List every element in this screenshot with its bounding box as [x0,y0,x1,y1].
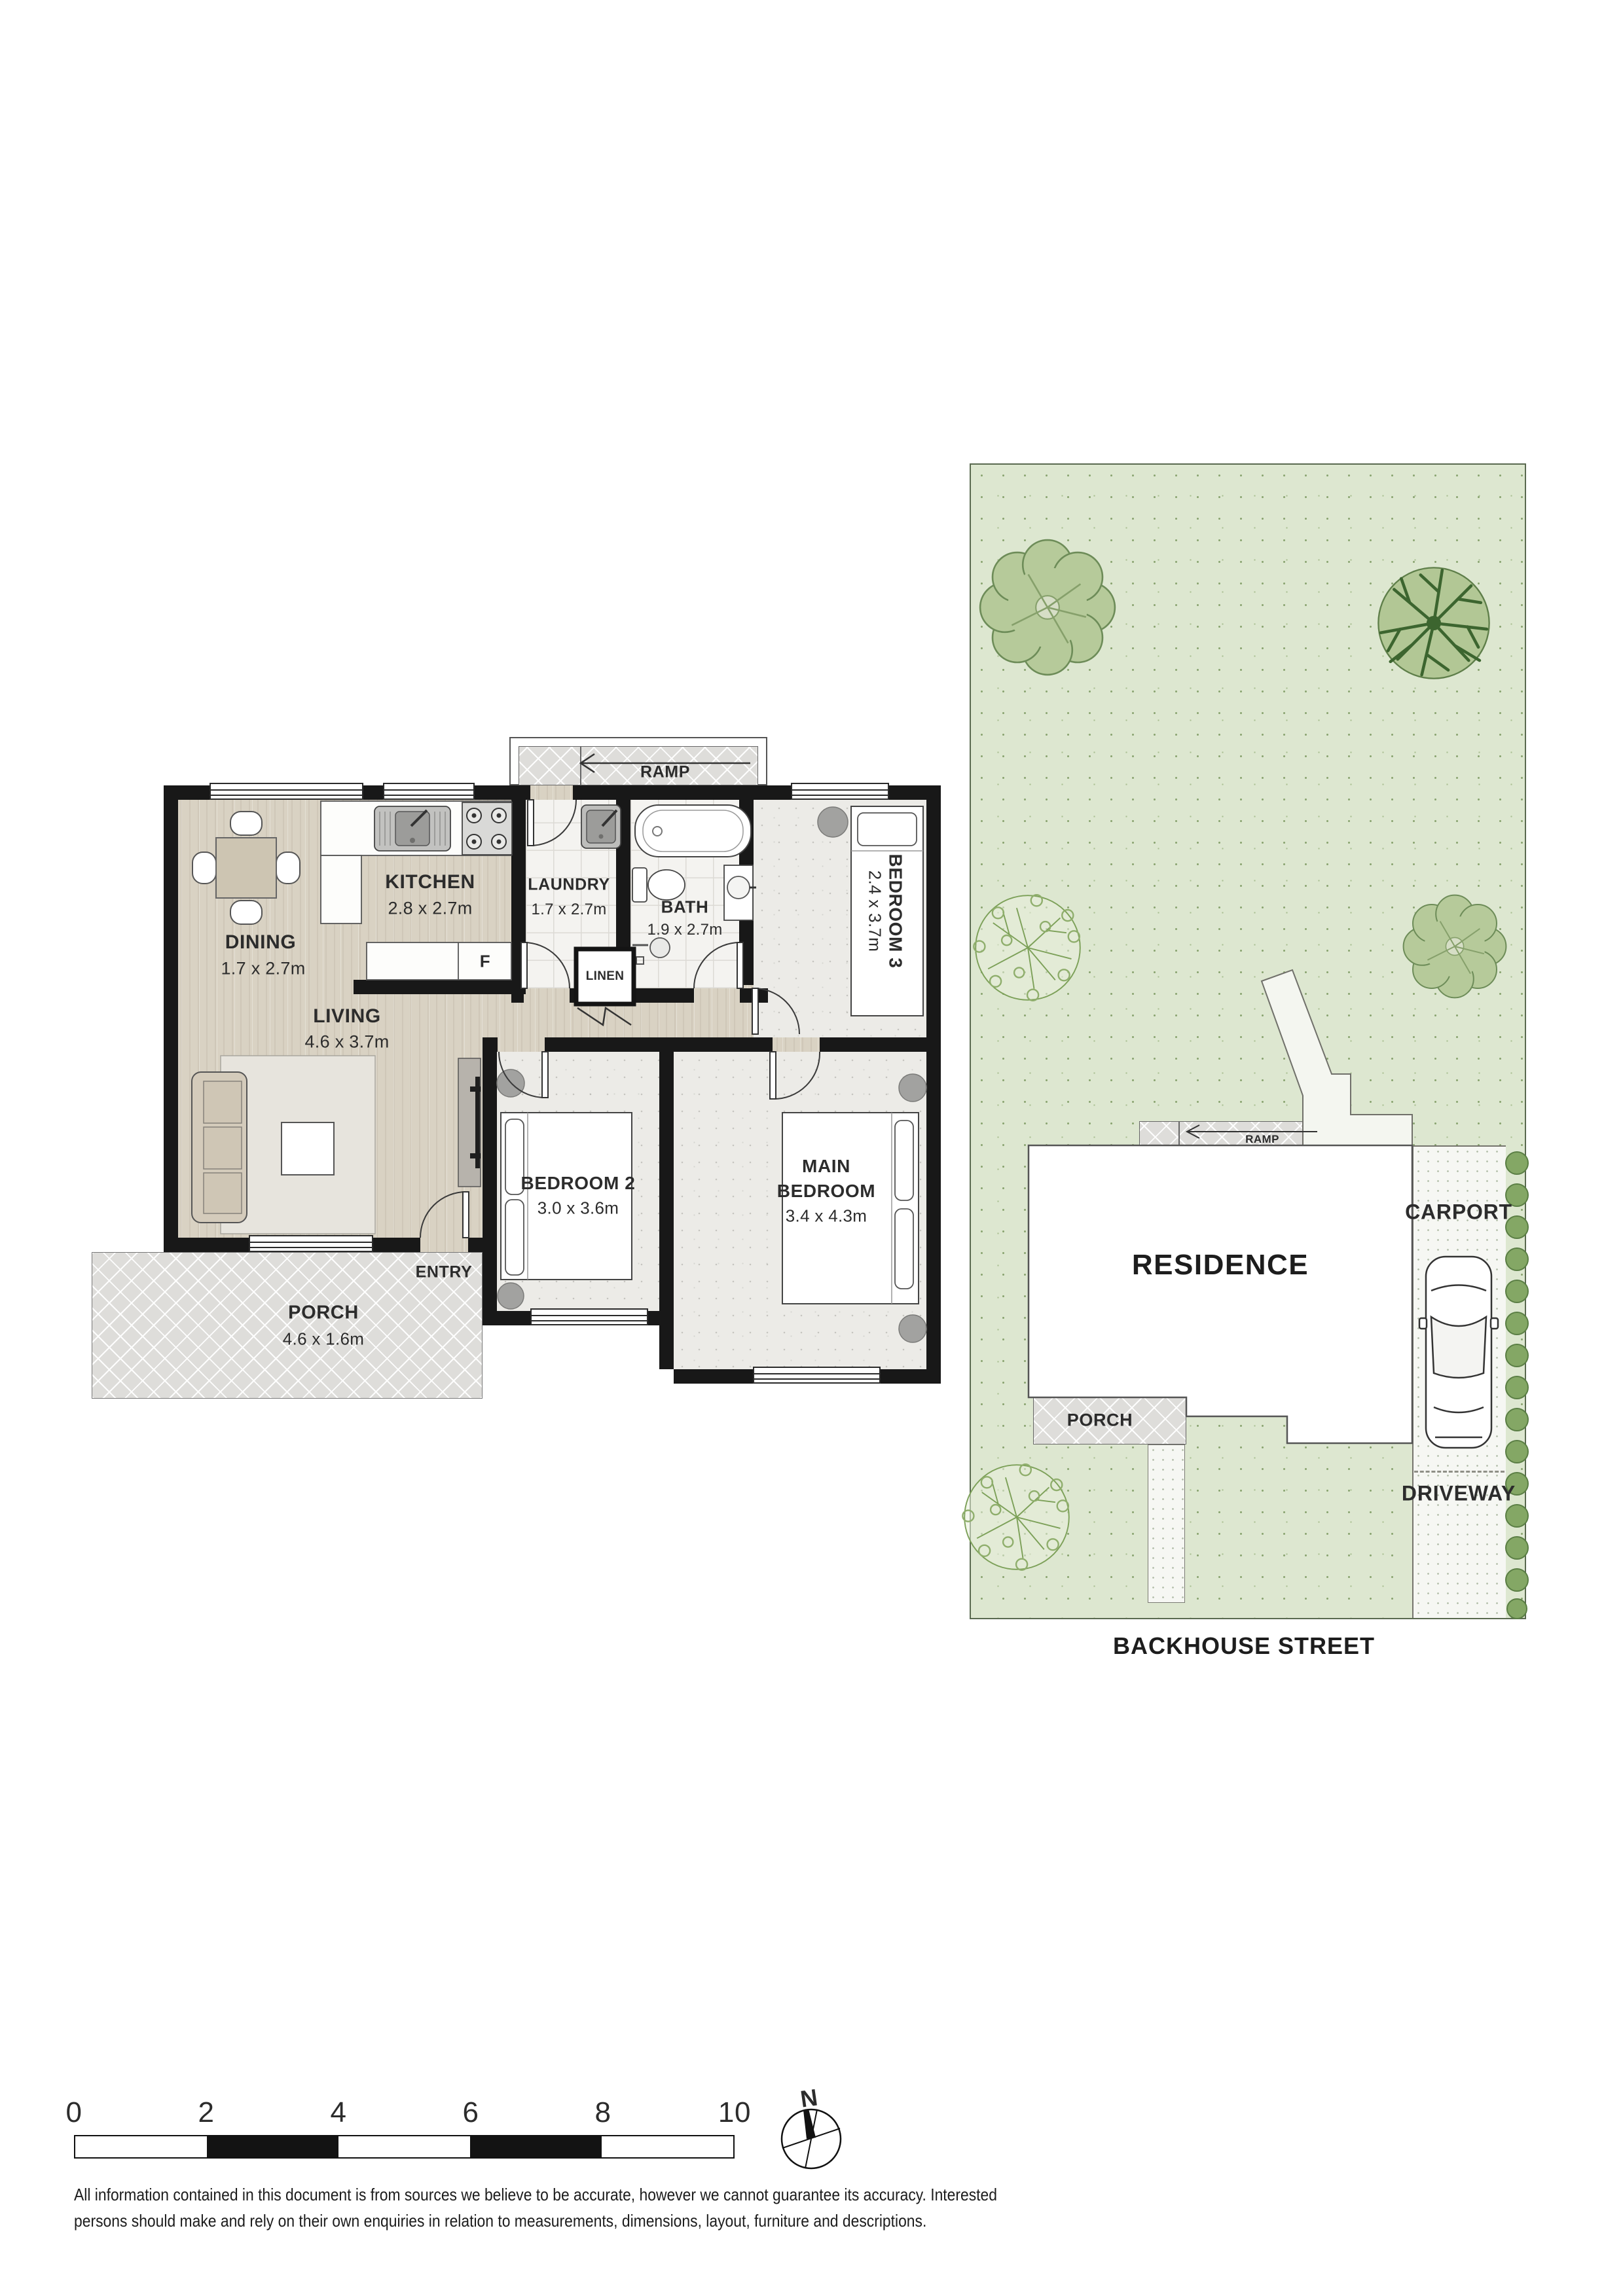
laundry-trough-icon [581,805,621,848]
bathtub-icon [635,805,751,857]
room-dims-bedroom3: 2.4 x 3.7m [865,854,885,969]
tree-icon [980,540,1115,675]
scale-bar-segment [75,2136,207,2157]
site-residence-footprint [1029,1145,1412,1443]
scale-tick-4: 4 [330,2096,346,2129]
compass-icon [782,2109,841,2168]
room-label-laundry: LAUNDRY [528,876,610,895]
floorplan-document: KITCHEN 2.8 x 2.7m DINING 1.7 x 2.7m LAU… [0,0,1623,2296]
room-label-main-bedroom: MAIN [802,1156,850,1177]
tv-unit-icon [458,1058,481,1187]
disclaimer-line-1: All information contained in this docume… [74,2185,997,2205]
room-label-kitchen: KITCHEN [385,871,475,893]
scale-bar-segment [602,2136,733,2157]
room-label-bedroom3-name: BEDROOM 3 [885,854,906,969]
room-label-bath: BATH [661,897,709,918]
scale-bar-segment [470,2136,602,2157]
room-label-porch: PORCH [288,1302,359,1324]
room-label-dining: DINING [225,931,297,954]
street-label: BACKHOUSE STREET [1113,1632,1375,1660]
site-accessible-path [1262,970,1412,1145]
room-label-living: LIVING [313,1005,381,1028]
linen-closet [576,949,634,1025]
site-residence-label: RESIDENCE [1132,1249,1309,1282]
room-dims-main-bedroom: 3.4 x 4.3m [786,1206,867,1227]
room-label-main-bedroom: BEDROOM [777,1181,875,1202]
plan-graphics [0,0,1623,2296]
shower-rose-icon [632,938,670,964]
tree-icon [1404,895,1506,998]
scale-tick-6: 6 [462,2096,479,2129]
site-ramp-label: RAMP [1245,1133,1279,1146]
site-driveway-label: DRIVEWAY [1402,1482,1516,1506]
site-porch-label: PORCH [1067,1410,1133,1431]
room-dims-laundry: 1.7 x 2.7m [531,901,606,919]
entry-label: ENTRY [416,1263,473,1282]
scale-tick-2: 2 [198,2096,214,2129]
scale-tick-0: 0 [65,2096,82,2129]
scale-bar-segment [207,2136,338,2157]
kitchen-sink-icon [374,806,450,851]
room-label-bedroom2: BEDROOM 2 [521,1173,636,1194]
car-icon [1419,1257,1498,1448]
compass-north-label: N [799,2083,820,2113]
room-dims-living: 4.6 x 3.7m [304,1032,389,1052]
scale-tick-8: 8 [594,2096,611,2129]
room-label-bedroom3: BEDROOM 3 2.4 x 3.7m [865,854,906,969]
vanity-basin-icon [724,865,756,920]
fridge-label: F [480,952,490,972]
room-dims-porch: 4.6 x 1.6m [283,1329,364,1350]
coffee-table-icon [282,1122,334,1175]
room-dims-bedroom2: 3.0 x 3.6m [538,1198,619,1219]
sofa-icon [192,1072,247,1223]
scale-bar [74,2135,735,2159]
plan-ramp-label: RAMP [640,763,690,782]
site-carport-label: CARPORT [1405,1200,1512,1225]
tree-icon [1378,567,1489,678]
room-dims-kitchen: 2.8 x 2.7m [388,899,472,919]
stove-icon [462,802,512,855]
tree-icon [962,1464,1068,1570]
tree-icon [974,895,1080,1001]
dining-table-icon [192,812,300,924]
scale-tick-10: 10 [718,2096,751,2129]
linen-label: LINEN [586,969,625,984]
disclaimer-line-2: persons should make and rely on their ow… [74,2211,926,2231]
room-dims-dining: 1.7 x 2.7m [221,959,305,979]
room-dims-bath: 1.9 x 2.7m [647,921,722,939]
scale-bar-segment [338,2136,470,2157]
